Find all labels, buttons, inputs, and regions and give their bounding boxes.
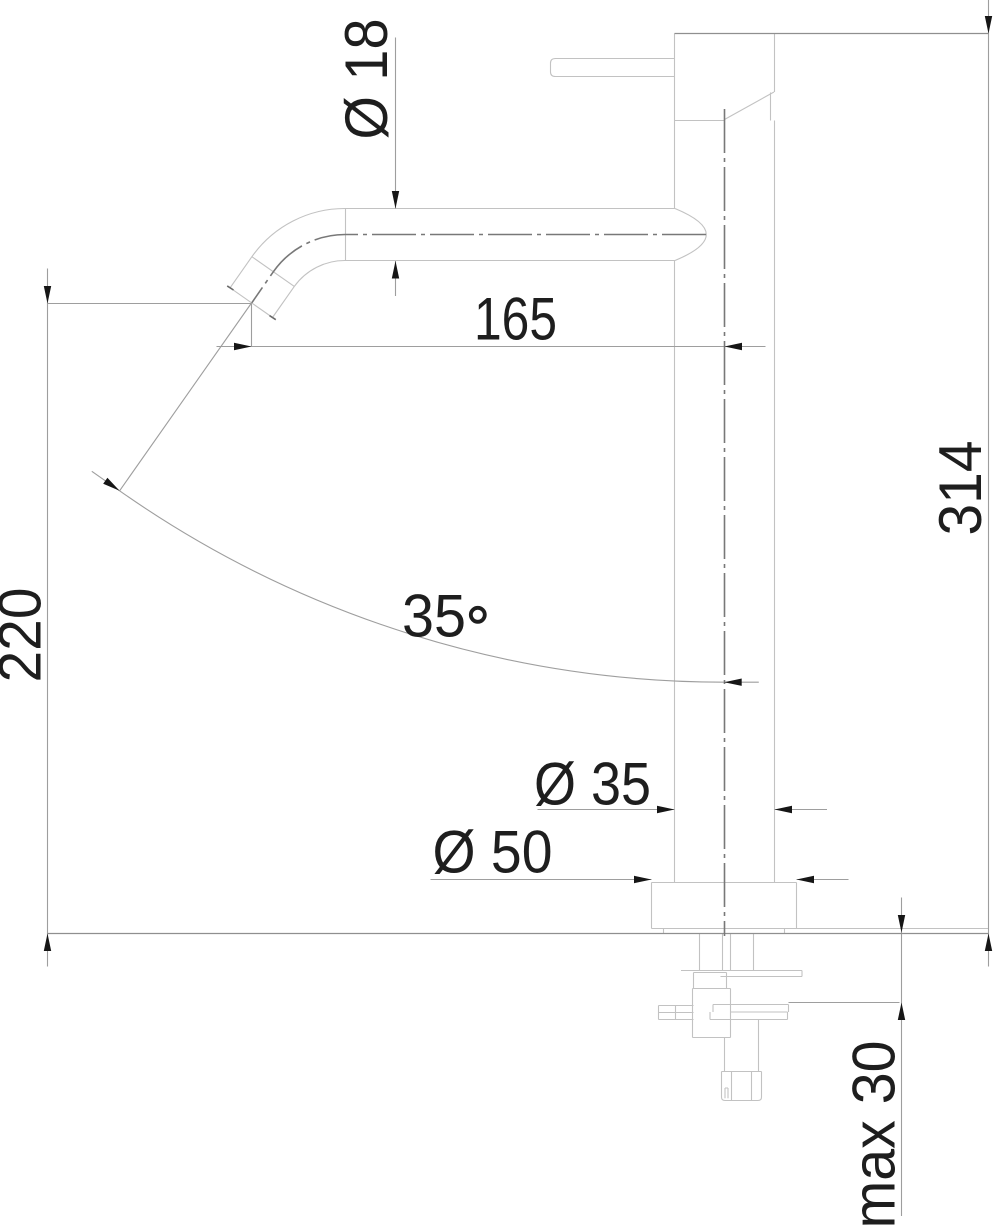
- svg-text:220: 220: [0, 588, 54, 683]
- svg-text:max 30: max 30: [841, 1041, 908, 1225]
- svg-text:35: 35: [402, 583, 466, 650]
- svg-text:Ø 50: Ø 50: [433, 819, 553, 886]
- svg-text:314: 314: [927, 441, 994, 536]
- svg-text:Ø 18: Ø 18: [333, 19, 400, 140]
- svg-text:165: 165: [474, 286, 557, 353]
- svg-text:Ø 35: Ø 35: [534, 751, 651, 818]
